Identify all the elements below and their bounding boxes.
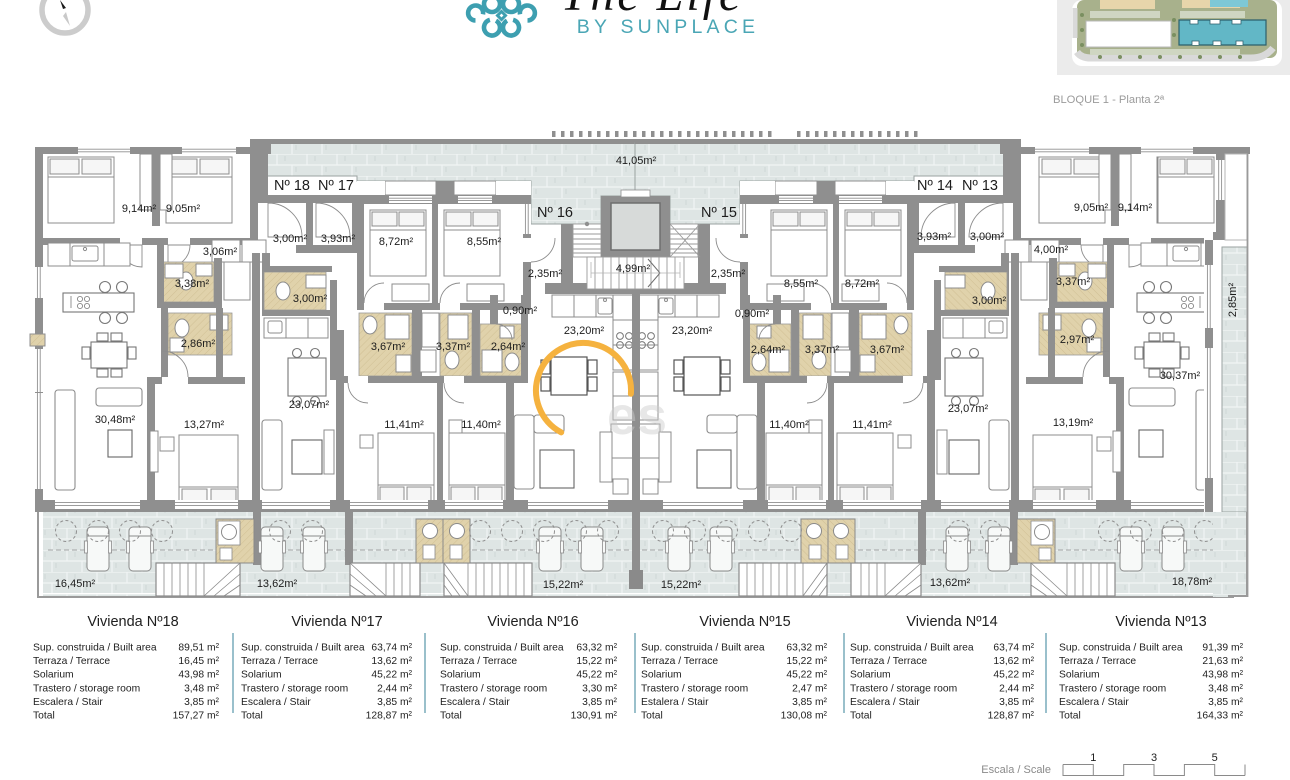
svg-text:Vivienda Nº13: Vivienda Nº13 <box>1115 614 1206 630</box>
svg-text:16,45 m²: 16,45 m² <box>178 656 219 667</box>
svg-text:Trastero / storage room: Trastero / storage room <box>33 683 140 694</box>
svg-text:43,98 m²: 43,98 m² <box>178 670 219 681</box>
svg-text:3,85 m²: 3,85 m² <box>184 697 219 708</box>
svg-text:15,22 m²: 15,22 m² <box>576 656 617 667</box>
svg-text:Total: Total <box>1059 711 1081 722</box>
svg-text:128,87 m²: 128,87 m² <box>988 711 1035 722</box>
svg-text:Total: Total <box>850 711 872 722</box>
svg-text:91,39 m²: 91,39 m² <box>1202 643 1243 654</box>
svg-text:Trastero / storage room: Trastero / storage room <box>641 683 748 694</box>
svg-text:Vivienda Nº17: Vivienda Nº17 <box>291 614 382 630</box>
svg-text:3,37m²: 3,37m² <box>805 344 840 356</box>
svg-text:Terraza / Terrace: Terraza / Terrace <box>1059 656 1136 667</box>
svg-text:0,90m²: 0,90m² <box>735 308 770 320</box>
svg-text:13,62 m²: 13,62 m² <box>371 656 412 667</box>
svg-text:2,47 m²: 2,47 m² <box>792 683 827 694</box>
svg-text:63,32 m²: 63,32 m² <box>576 643 617 654</box>
svg-text:23,20m²: 23,20m² <box>564 325 605 337</box>
svg-text:BLOQUE 1 - Planta 2ª: BLOQUE 1 - Planta 2ª <box>1053 94 1165 106</box>
svg-text:Terraza / Terrace: Terraza / Terrace <box>241 656 318 667</box>
svg-text:13,62 m²: 13,62 m² <box>993 656 1034 667</box>
svg-text:23,07m²: 23,07m² <box>948 403 989 415</box>
svg-text:Sup. construida / Built area: Sup. construida / Built area <box>241 643 365 654</box>
svg-text:Total: Total <box>33 711 55 722</box>
svg-text:Escala / Scale: Escala / Scale <box>981 764 1051 776</box>
svg-text:9,14m²: 9,14m² <box>122 203 157 215</box>
svg-text:3,85 m²: 3,85 m² <box>582 697 617 708</box>
svg-text:Vivienda Nº18: Vivienda Nº18 <box>87 614 178 630</box>
svg-text:3,37m²: 3,37m² <box>1056 276 1091 288</box>
svg-text:Vivienda Nº16: Vivienda Nº16 <box>487 614 578 630</box>
svg-text:Trastero / storage room: Trastero / storage room <box>241 683 348 694</box>
svg-text:8,55m²: 8,55m² <box>784 278 819 290</box>
svg-text:Escalera / Stair: Escalera / Stair <box>33 697 103 708</box>
svg-text:3,00m²: 3,00m² <box>273 233 308 245</box>
svg-text:11,40m²: 11,40m² <box>461 419 501 431</box>
svg-text:3,00m²: 3,00m² <box>293 293 328 305</box>
svg-text:3,00m²: 3,00m² <box>972 295 1007 307</box>
svg-text:Sup. construida / Built area: Sup. construida / Built area <box>440 643 564 654</box>
svg-text:3,67m²: 3,67m² <box>371 341 406 353</box>
svg-text:128,87 m²: 128,87 m² <box>366 711 413 722</box>
svg-text:3,85 m²: 3,85 m² <box>1208 697 1243 708</box>
svg-text:63,32 m²: 63,32 m² <box>786 643 827 654</box>
svg-text:Total: Total <box>641 711 663 722</box>
svg-text:15,22 m²: 15,22 m² <box>786 656 827 667</box>
svg-text:15,22m²: 15,22m² <box>661 579 702 591</box>
svg-text:Estalera / Stair: Estalera / Stair <box>641 697 709 708</box>
svg-text:130,91 m²: 130,91 m² <box>571 711 618 722</box>
svg-text:Solarium: Solarium <box>850 670 891 681</box>
svg-text:2,64m²: 2,64m² <box>751 344 786 356</box>
svg-text:45,22 m²: 45,22 m² <box>576 670 617 681</box>
svg-text:Escalera / Stair: Escalera / Stair <box>440 697 510 708</box>
svg-text:Terraza / Terrace: Terraza / Terrace <box>641 656 718 667</box>
svg-text:3,38m²: 3,38m² <box>175 278 210 290</box>
svg-text:8,55m²: 8,55m² <box>467 236 502 248</box>
svg-text:Escalera / Stair: Escalera / Stair <box>1059 697 1129 708</box>
svg-text:18,78m²: 18,78m² <box>1172 576 1213 588</box>
svg-text:13,27m²: 13,27m² <box>184 419 225 431</box>
svg-text:11,40m²: 11,40m² <box>769 419 809 431</box>
svg-text:3,00m²: 3,00m² <box>970 231 1005 243</box>
svg-text:23,20m²: 23,20m² <box>672 325 713 337</box>
svg-text:2,35m²: 2,35m² <box>711 268 746 280</box>
svg-text:3,48 m²: 3,48 m² <box>1208 683 1243 694</box>
svg-text:45,22 m²: 45,22 m² <box>786 670 827 681</box>
svg-text:Solarium: Solarium <box>440 670 481 681</box>
svg-text:2,97m²: 2,97m² <box>1060 334 1095 346</box>
svg-text:2,44 m²: 2,44 m² <box>999 683 1034 694</box>
svg-text:30,37m²: 30,37m² <box>1160 370 1201 382</box>
svg-text:Nº 16: Nº 16 <box>537 205 573 221</box>
svg-text:157,27 m²: 157,27 m² <box>173 711 220 722</box>
svg-text:4,00m²: 4,00m² <box>1034 244 1069 256</box>
svg-text:63,74 m²: 63,74 m² <box>371 643 412 654</box>
svg-text:2,35m²: 2,35m² <box>528 268 563 280</box>
svg-text:Sup. construida / Built area: Sup. construida / Built area <box>641 643 765 654</box>
svg-text:43,98 m²: 43,98 m² <box>1202 670 1243 681</box>
svg-text:2,44 m²: 2,44 m² <box>377 683 412 694</box>
svg-text:2,86m²: 2,86m² <box>181 338 216 350</box>
svg-text:21,63 m²: 21,63 m² <box>1202 656 1243 667</box>
svg-text:3,48 m²: 3,48 m² <box>184 683 219 694</box>
svg-text:11,41m²: 11,41m² <box>384 419 424 431</box>
svg-text:Solarium: Solarium <box>33 670 74 681</box>
svg-text:3,37m²: 3,37m² <box>436 341 471 353</box>
svg-text:BY SUNPLACE: BY SUNPLACE <box>577 16 759 38</box>
svg-text:Total: Total <box>440 711 462 722</box>
svg-text:3,93m²: 3,93m² <box>321 233 356 245</box>
svg-text:9,05m²: 9,05m² <box>166 203 201 215</box>
svg-text:Nº 18: Nº 18 <box>274 178 310 194</box>
svg-text:Escalera / Stair: Escalera / Stair <box>850 697 920 708</box>
svg-text:3,85 m²: 3,85 m² <box>377 697 412 708</box>
svg-text:8,72m²: 8,72m² <box>379 236 414 248</box>
svg-text:13,19m²: 13,19m² <box>1053 417 1094 429</box>
svg-text:164,33 m²: 164,33 m² <box>1197 711 1244 722</box>
svg-text:Nº 15: Nº 15 <box>701 205 737 221</box>
svg-text:Solarium: Solarium <box>1059 670 1100 681</box>
svg-text:3,06m²: 3,06m² <box>203 246 238 258</box>
svg-text:23,07m²: 23,07m² <box>289 399 330 411</box>
svg-text:16,45m²: 16,45m² <box>55 578 96 590</box>
svg-text:0,90m²: 0,90m² <box>503 305 538 317</box>
svg-text:11,41m²: 11,41m² <box>852 419 892 431</box>
svg-text:15,22m²: 15,22m² <box>543 579 584 591</box>
svg-text:Vivienda Nº15: Vivienda Nº15 <box>699 614 790 630</box>
svg-text:Nº 17: Nº 17 <box>318 178 354 194</box>
svg-text:3,67m²: 3,67m² <box>870 344 905 356</box>
svg-text:2,85m²: 2,85m² <box>1227 283 1239 318</box>
svg-text:13,62m²: 13,62m² <box>930 577 971 589</box>
svg-text:45,22 m²: 45,22 m² <box>993 670 1034 681</box>
svg-text:5: 5 <box>1212 752 1218 764</box>
svg-text:Sup. construida / Built area: Sup. construida / Built area <box>1059 643 1183 654</box>
svg-text:Nº 13: Nº 13 <box>962 178 998 194</box>
svg-text:Sup. construida / Built area: Sup. construida / Built area <box>33 643 157 654</box>
svg-text:1: 1 <box>1090 752 1096 764</box>
svg-text:Solarium: Solarium <box>241 670 282 681</box>
svg-text:9,05m²: 9,05m² <box>1074 202 1109 214</box>
svg-text:3,85 m²: 3,85 m² <box>792 697 827 708</box>
svg-text:13,62m²: 13,62m² <box>257 578 298 590</box>
svg-text:63,74 m²: 63,74 m² <box>993 643 1034 654</box>
svg-text:Terraza / Terrace: Terraza / Terrace <box>850 656 927 667</box>
svg-text:Trastero / storage room: Trastero / storage room <box>850 683 957 694</box>
svg-text:es: es <box>607 386 667 446</box>
svg-text:41,05m²: 41,05m² <box>616 155 657 167</box>
svg-text:2,64m²: 2,64m² <box>491 341 526 353</box>
svg-text:Terraza / Terrace: Terraza / Terrace <box>440 656 517 667</box>
svg-text:Escalera / Stair: Escalera / Stair <box>241 697 311 708</box>
svg-text:45,22 m²: 45,22 m² <box>371 670 412 681</box>
svg-text:3,93m²: 3,93m² <box>917 231 952 243</box>
svg-text:8,72m²: 8,72m² <box>845 278 880 290</box>
svg-text:Trastero / storage room: Trastero / storage room <box>1059 683 1166 694</box>
svg-text:Nº 14: Nº 14 <box>917 178 953 194</box>
svg-text:Terraza / Terrace: Terraza / Terrace <box>33 656 110 667</box>
svg-text:9,14m²: 9,14m² <box>1118 202 1153 214</box>
svg-text:30,48m²: 30,48m² <box>95 414 136 426</box>
svg-text:Total: Total <box>241 711 263 722</box>
svg-text:4,99m²: 4,99m² <box>616 263 651 275</box>
svg-text:Vivienda Nº14: Vivienda Nº14 <box>906 614 997 630</box>
svg-text:Trastero / storage room: Trastero / storage room <box>440 683 547 694</box>
svg-text:130,08 m²: 130,08 m² <box>781 711 828 722</box>
svg-text:89,51 m²: 89,51 m² <box>178 643 219 654</box>
svg-text:3,30 m²: 3,30 m² <box>582 683 617 694</box>
svg-text:Sup. construida / Built area: Sup. construida / Built area <box>850 643 974 654</box>
svg-text:3: 3 <box>1151 752 1157 764</box>
svg-text:Solarium: Solarium <box>641 670 682 681</box>
svg-text:3,85 m²: 3,85 m² <box>999 697 1034 708</box>
